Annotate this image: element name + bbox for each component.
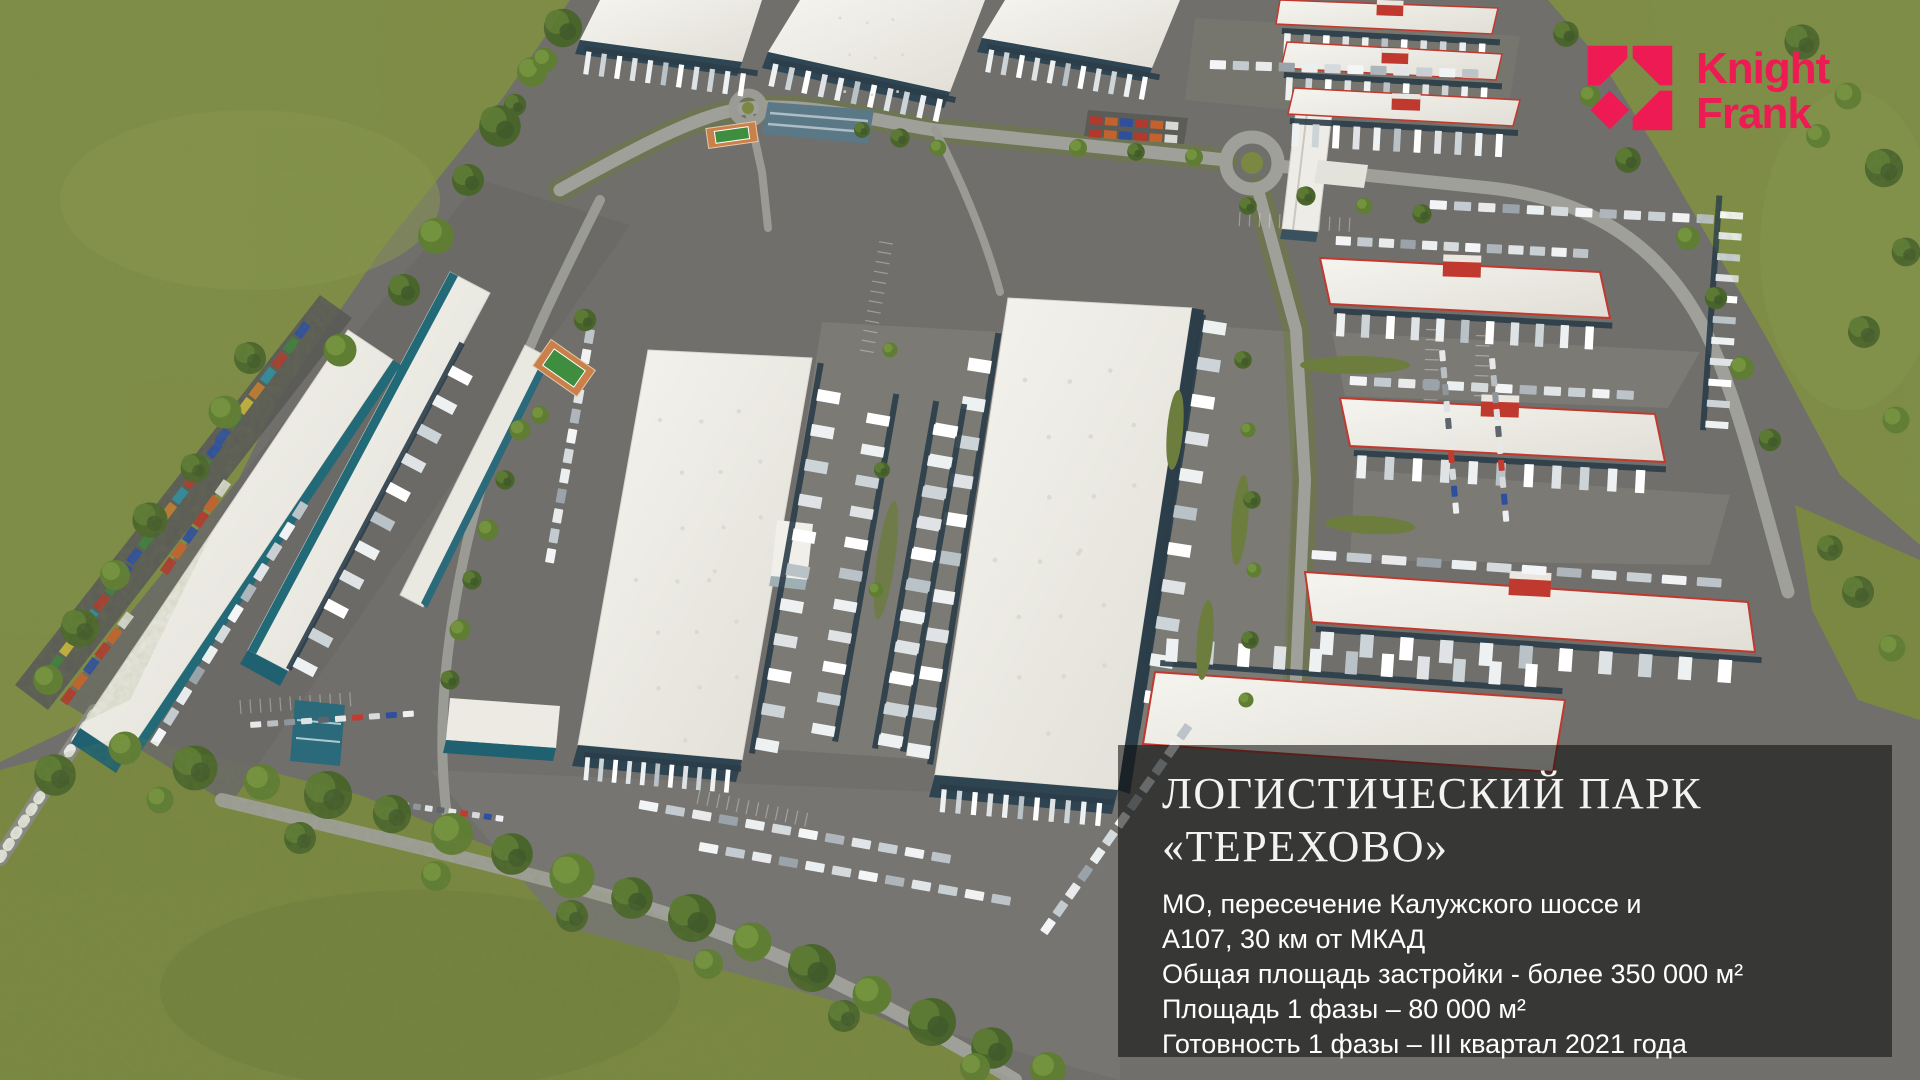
park-title: ЛОГИСТИЧЕСКИЙ ПАРК «ТЕРЕХОВО» — [1162, 767, 1862, 873]
detail-total-area: Общая площадь застройки - более 350 000 … — [1162, 957, 1862, 992]
knight-frank-logo: Knight Frank — [1586, 44, 1829, 136]
detail-phase1-area: Площадь 1 фазы – 80 000 м² — [1162, 992, 1862, 1027]
info-panel: ЛОГИСТИЧЕСКИЙ ПАРК «ТЕРЕХОВО» МО, пересе… — [1118, 745, 1892, 1057]
knight-frank-mark-icon — [1586, 44, 1674, 132]
knight-frank-wordmark: Knight Frank — [1696, 46, 1829, 136]
slide: Knight Frank ЛОГИСТИЧЕСКИЙ ПАРК «ТЕРЕХОВ… — [0, 0, 1920, 1080]
brand-line1: Knight — [1696, 46, 1829, 91]
park-title-line1: ЛОГИСТИЧЕСКИЙ ПАРК — [1162, 767, 1862, 820]
detail-location-line1: МО, пересечение Калужского шоссе и — [1162, 887, 1862, 922]
brand-line2: Frank — [1696, 91, 1829, 136]
park-title-line2: «ТЕРЕХОВО» — [1162, 820, 1862, 873]
detail-phase1-ready: Готовность 1 фазы – III квартал 2021 год… — [1162, 1027, 1862, 1062]
park-details: МО, пересечение Калужского шоссе и А107,… — [1162, 887, 1862, 1062]
detail-location-line2: А107, 30 км от МКАД — [1162, 922, 1862, 957]
